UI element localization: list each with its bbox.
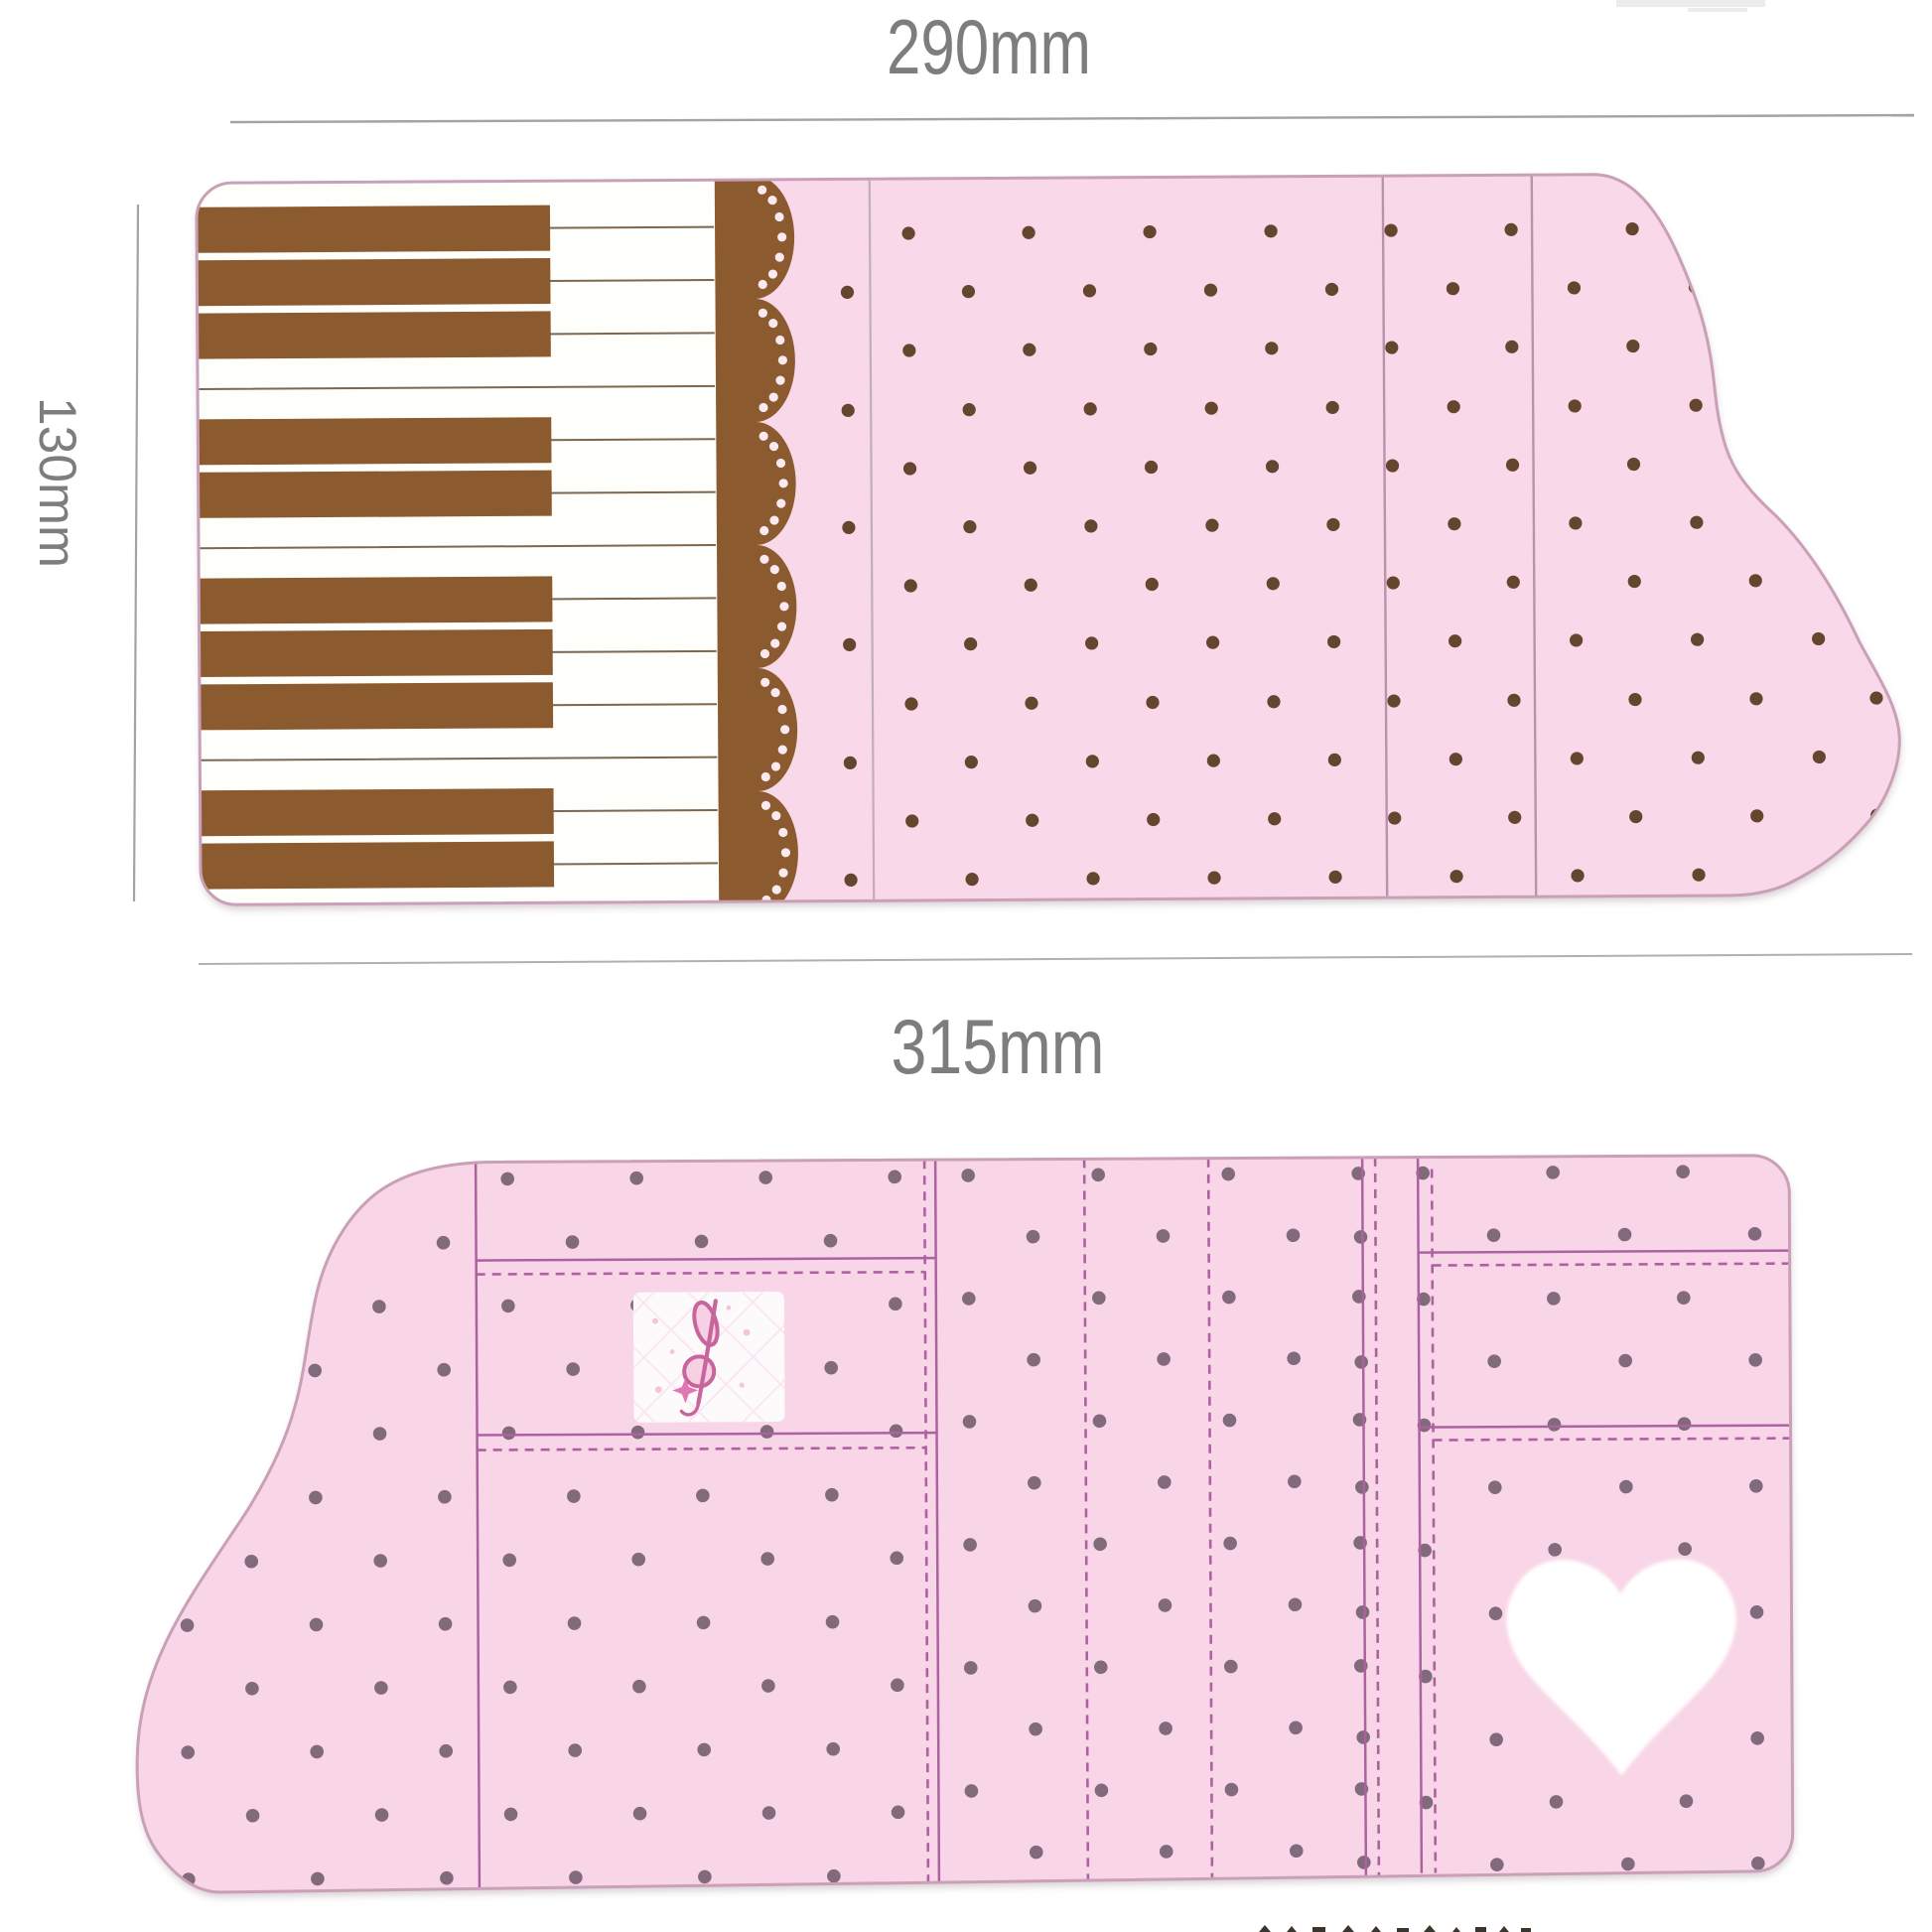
svg-text:315mm: 315mm [892,1003,1105,1090]
svg-text:290mm: 290mm [887,3,1091,90]
svg-text:130mm: 130mm [28,397,86,568]
